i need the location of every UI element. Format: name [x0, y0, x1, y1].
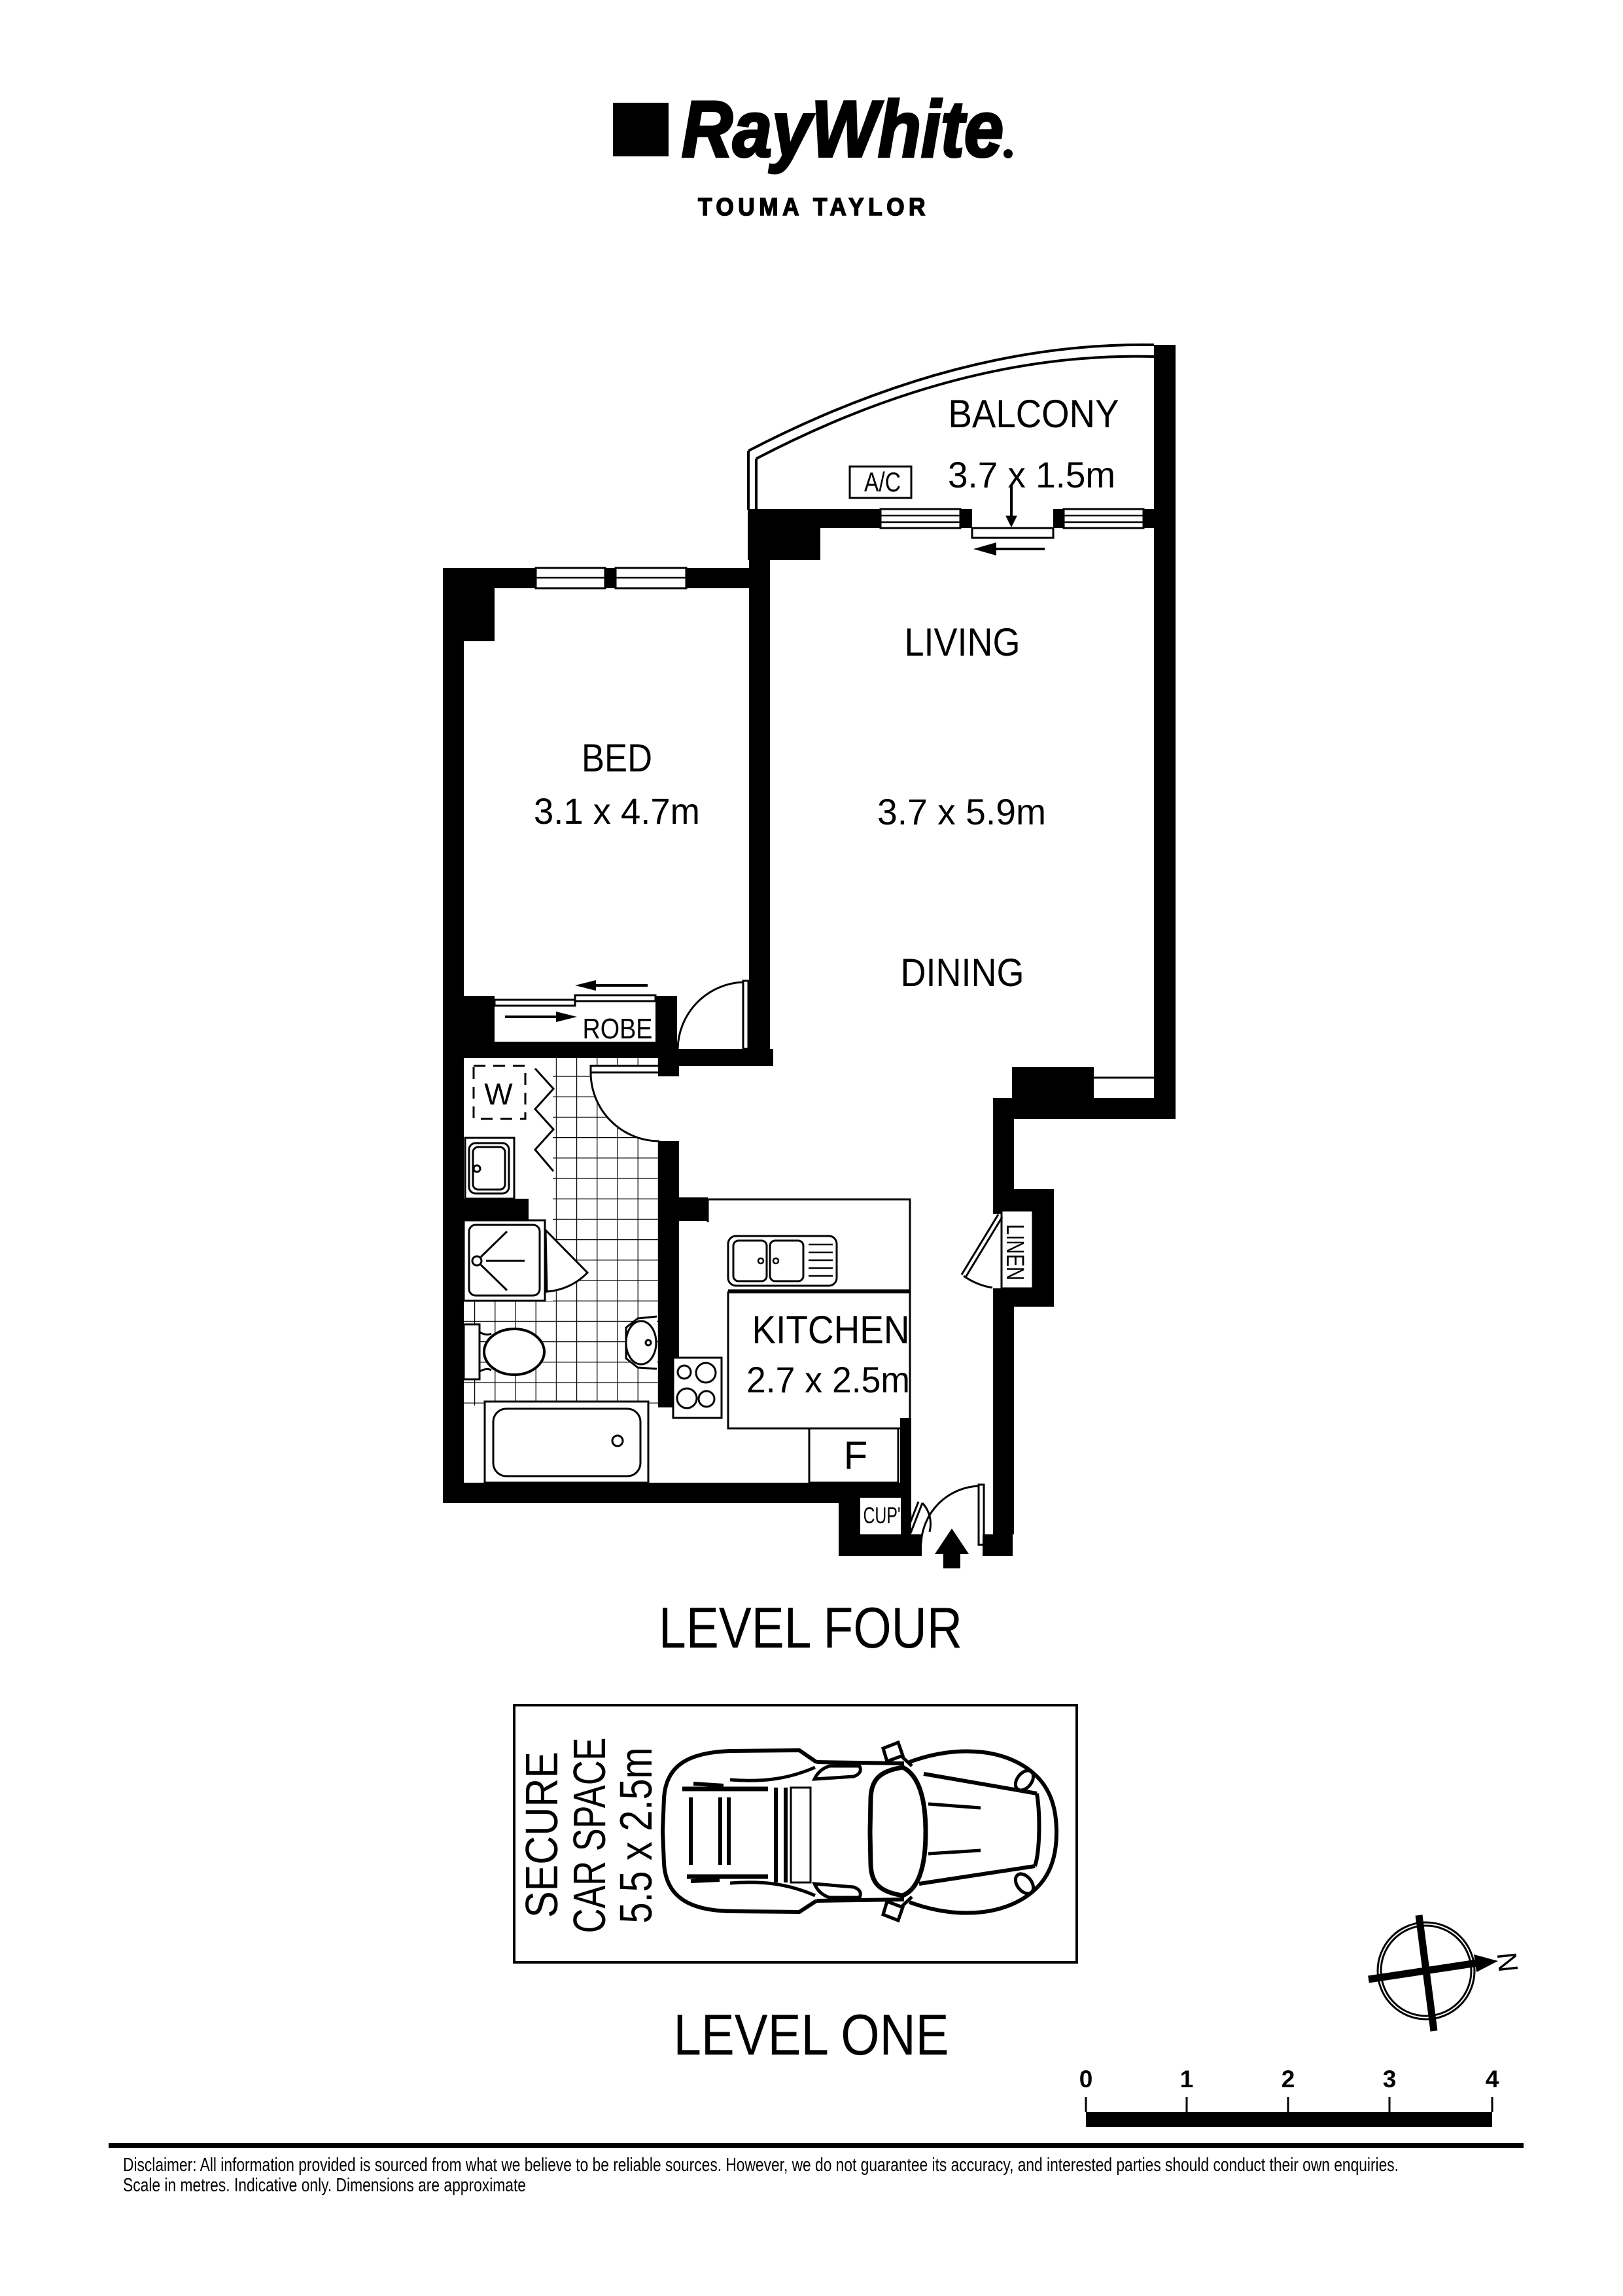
svg-text:W: W: [484, 1077, 513, 1111]
svg-text:CUP'D: CUP'D: [864, 1503, 913, 1528]
svg-text:DINING: DINING: [901, 951, 1024, 995]
svg-text:4: 4: [1486, 2066, 1499, 2093]
svg-text:LEVEL FOUR: LEVEL FOUR: [659, 1595, 962, 1660]
svg-text:SECURE: SECURE: [516, 1752, 567, 1918]
svg-text:N: N: [1492, 1951, 1524, 1973]
svg-text:Scale in metres. Indicative on: Scale in metres. Indicative only. Dimens…: [123, 2175, 526, 2196]
svg-text:A/C: A/C: [864, 467, 901, 497]
svg-text:0: 0: [1079, 2066, 1093, 2093]
svg-text:1: 1: [1180, 2066, 1194, 2093]
svg-text:2.7 x 2.5m: 2.7 x 2.5m: [746, 1359, 910, 1400]
svg-text:3.7 x 1.5m: 3.7 x 1.5m: [948, 454, 1115, 495]
svg-text:Disclaimer: All information pr: Disclaimer: All information provided is …: [123, 2155, 1399, 2176]
svg-text:BALCONY: BALCONY: [949, 392, 1119, 436]
svg-text:LEVEL ONE: LEVEL ONE: [674, 2002, 949, 2067]
svg-text:3.7 x 5.9m: 3.7 x 5.9m: [877, 791, 1046, 832]
svg-text:5.5 x 2.5m: 5.5 x 2.5m: [610, 1748, 661, 1924]
svg-text:RayWhite: RayWhite: [682, 84, 1003, 173]
svg-text:LINEN: LINEN: [1001, 1224, 1028, 1280]
svg-text:TOUMA TAYLOR: TOUMA TAYLOR: [698, 194, 930, 221]
svg-text:3: 3: [1383, 2066, 1397, 2093]
svg-text:F: F: [844, 1434, 868, 1477]
svg-text:2: 2: [1282, 2066, 1295, 2093]
svg-text:CAR SPACE: CAR SPACE: [564, 1738, 615, 1934]
svg-text:LIVING: LIVING: [905, 620, 1021, 664]
svg-text:ROBE: ROBE: [583, 1013, 653, 1045]
svg-text:BED: BED: [582, 736, 652, 780]
svg-text:3.1 x 4.7m: 3.1 x 4.7m: [534, 790, 700, 832]
svg-text:KITCHEN: KITCHEN: [752, 1308, 910, 1352]
